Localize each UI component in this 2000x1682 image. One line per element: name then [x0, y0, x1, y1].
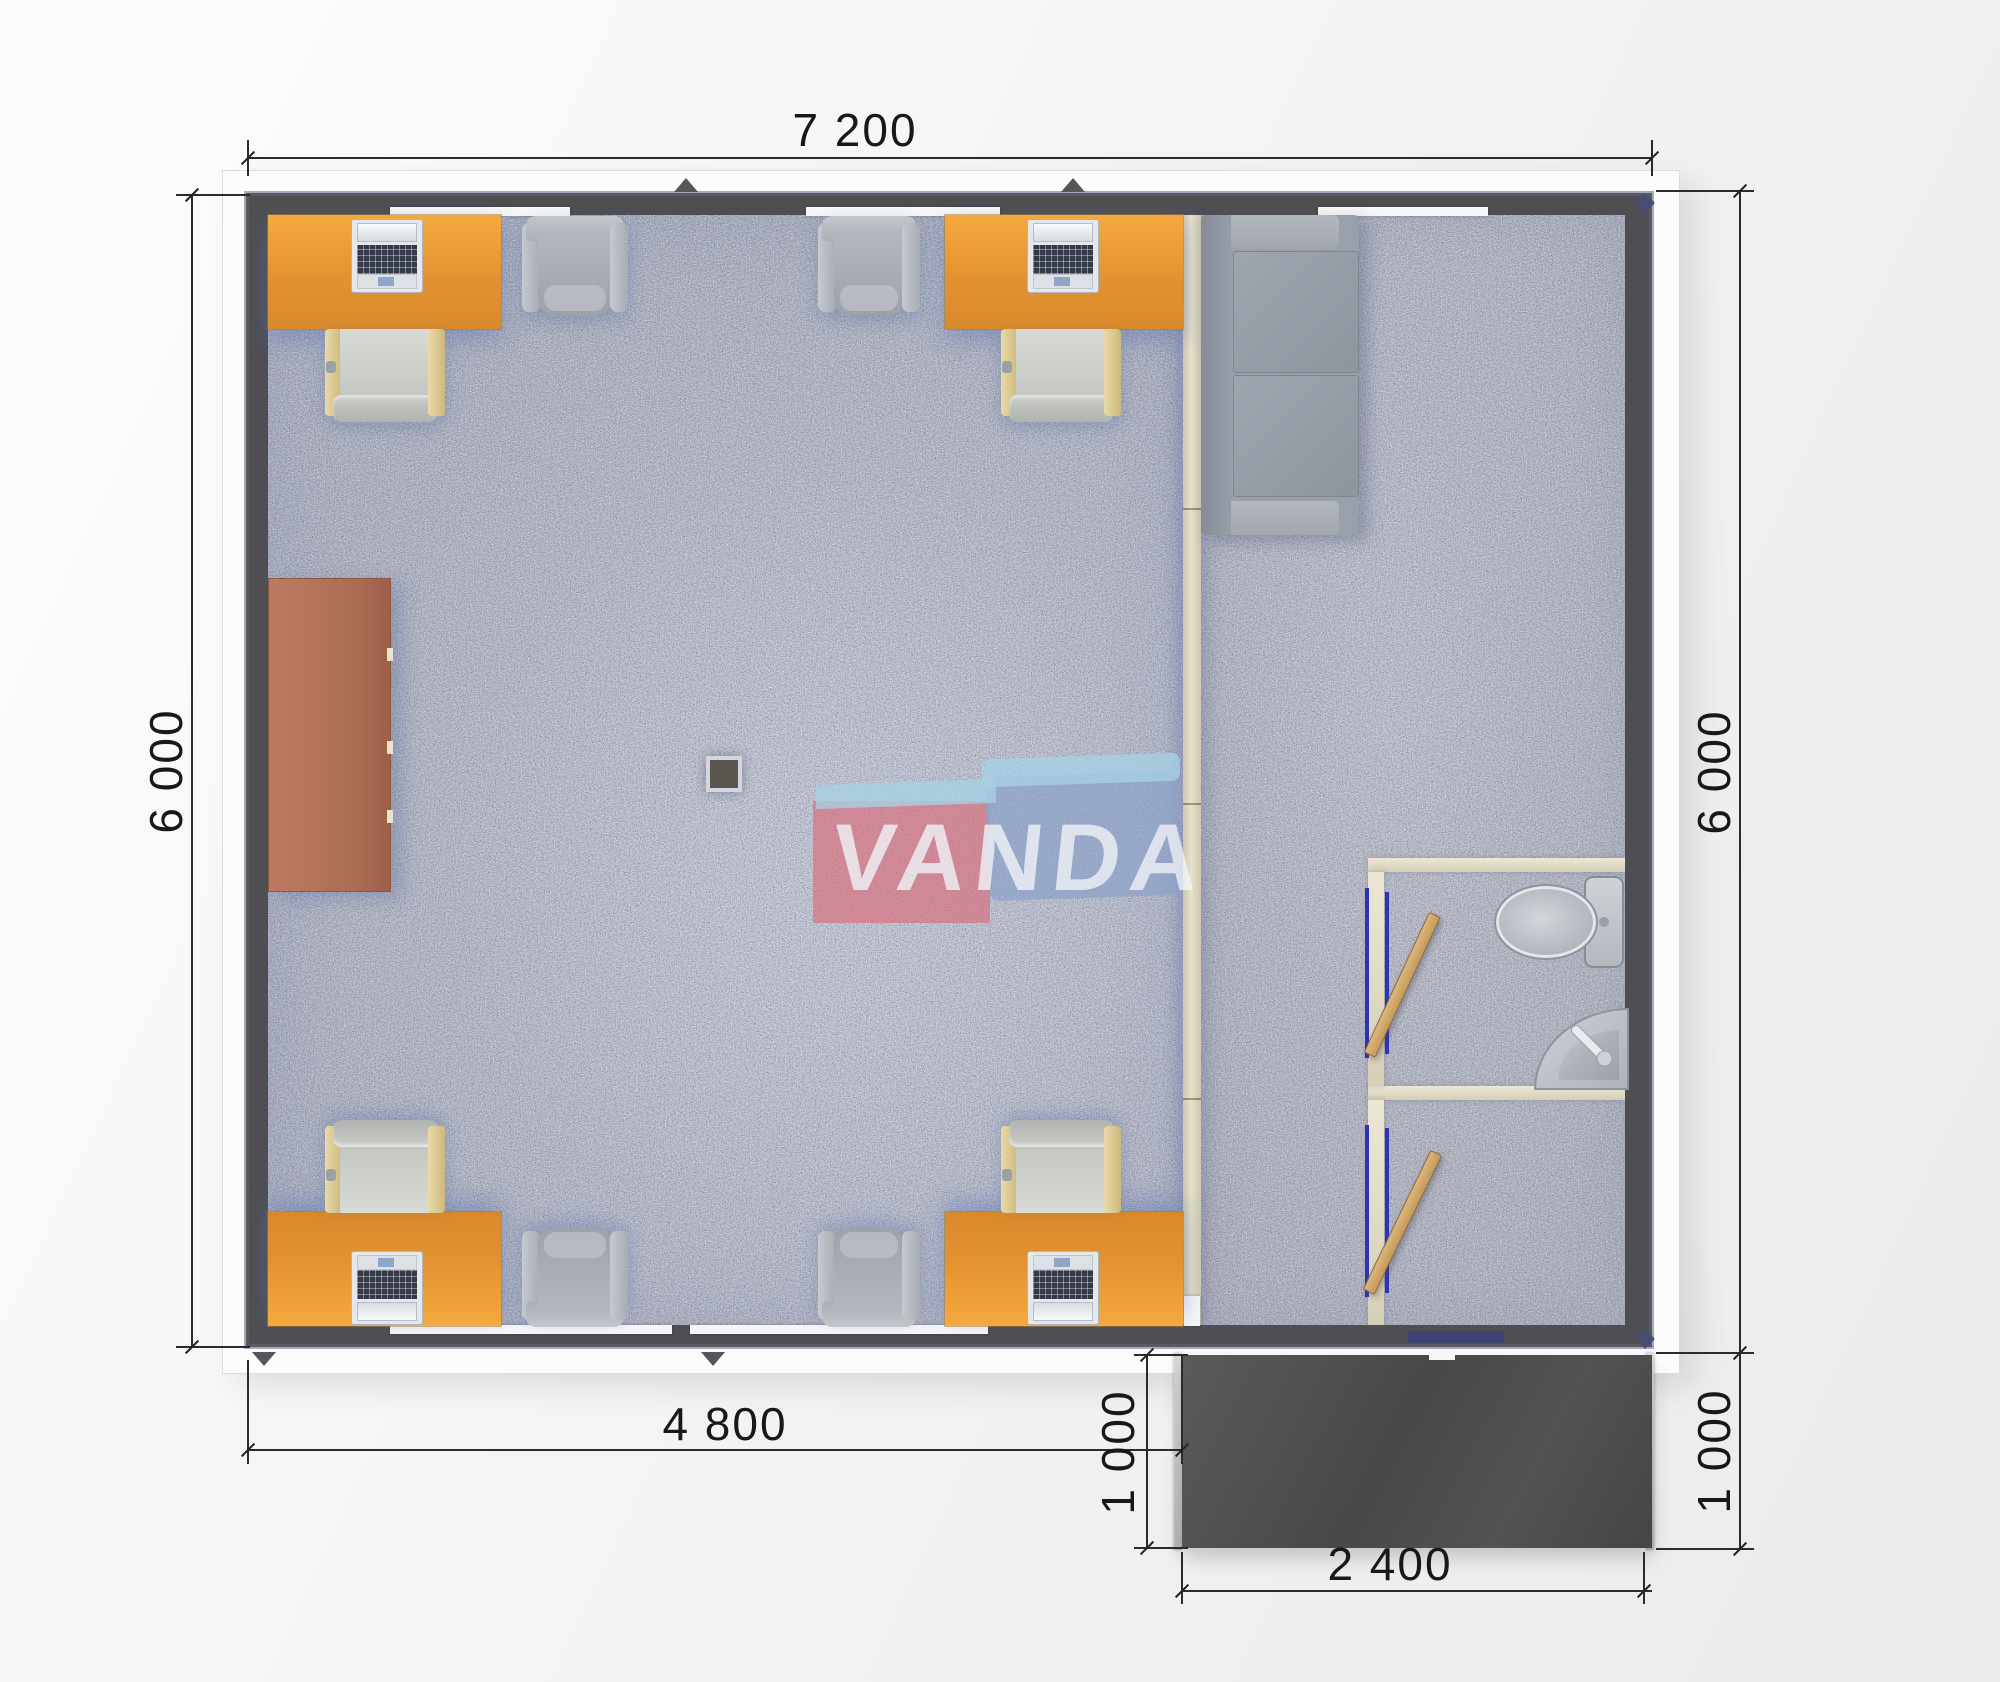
hall-door-frame: [1365, 1125, 1369, 1297]
dim-ext-left-bottom: [176, 1346, 250, 1348]
desk-computer-bottom-left: [351, 1251, 423, 1325]
dim-label-left-height: 6 000: [140, 621, 192, 921]
facade-joint-mark-top-2: [1061, 178, 1085, 192]
computer-front-panel: [357, 1255, 417, 1270]
entrance-porch: [1182, 1355, 1652, 1548]
watermark-text: VANDA: [826, 804, 1213, 913]
sofa-backrest: [1201, 215, 1231, 535]
computer-keyboard: [1033, 245, 1093, 274]
computer-keyboard: [357, 245, 417, 274]
dim-line-porch-width: [1182, 1590, 1652, 1592]
toilet-bowl: [1496, 886, 1596, 958]
facade-joint-mark-top-1: [674, 178, 698, 192]
desk-computer-bottom-right: [1027, 1251, 1099, 1325]
armchair-bottom-left: [522, 1228, 628, 1327]
task-chair-seat: [340, 1142, 430, 1213]
task-chair-bottom-right: [1001, 1120, 1121, 1213]
computer-front-panel: [1033, 1255, 1093, 1270]
facade-joint-mark-bottom-2: [701, 1352, 725, 1366]
computer-screen: [357, 223, 417, 242]
task-chair-back: [333, 395, 437, 422]
armchair-seat: [834, 237, 904, 315]
desk-computer-top-right: [1027, 219, 1099, 293]
task-chair-bottom-left: [325, 1120, 445, 1213]
armchair-top-right: [818, 216, 920, 315]
sideboard-handle: [387, 810, 393, 823]
dim-label-porch-width: 2 400: [1240, 1538, 1540, 1590]
computer-keyboard: [357, 1270, 417, 1299]
sofa-cushion-2: [1233, 375, 1359, 497]
task-chair-top-right: [1001, 329, 1121, 422]
armchair-top-left: [522, 216, 628, 315]
facade-joint-mark-bottom-1: [252, 1352, 276, 1366]
task-chair-back: [1009, 1120, 1113, 1147]
computer-keyboard: [1033, 1270, 1093, 1299]
computer-screen: [1033, 223, 1093, 242]
armchair-seat: [538, 237, 612, 315]
computer-front-panel: [357, 274, 417, 289]
sideboard: [268, 578, 391, 892]
armchair-seat: [834, 1228, 904, 1306]
task-chair-back: [333, 1120, 437, 1147]
armchair-seat: [538, 1228, 612, 1306]
dim-label-porch-depth-right: 1 000: [1688, 1301, 1740, 1601]
partition-wall: [1183, 215, 1201, 1325]
structural-column: [706, 756, 742, 792]
task-chair-seat: [1016, 329, 1106, 400]
watermark-logo: VANDA: [810, 752, 1185, 942]
dim-ext-2400-left: [1181, 1552, 1183, 1604]
floor-plan-canvas: VANDA 7 200 6 000 6 000 4 800 1 000 2 40…: [0, 0, 2000, 1682]
armchair-bottom-right: [818, 1228, 920, 1327]
computer-screen: [1033, 1302, 1093, 1321]
sofa-cushion-1: [1233, 251, 1359, 373]
task-chair-seat: [340, 329, 430, 400]
partition-bottom-notch: [1184, 1296, 1200, 1326]
task-chair-seat: [1016, 1142, 1106, 1213]
task-chair-top-left: [325, 329, 445, 422]
task-chair-back: [1009, 395, 1113, 422]
desk-computer-top-left: [351, 219, 423, 293]
dim-ext-2400-right: [1643, 1552, 1645, 1604]
dim-label-office-width: 4 800: [575, 1398, 875, 1450]
dim-label-porch-depth-left: 1 000: [1092, 1302, 1144, 1602]
bathroom-door-frame: [1365, 888, 1369, 1058]
computer-screen: [357, 1302, 417, 1321]
sofa: [1201, 215, 1359, 535]
dim-line-porch-left: [1146, 1355, 1148, 1548]
bathroom-wall-top: [1368, 858, 1625, 872]
dim-ext-left-top: [176, 194, 250, 196]
entrance-door-threshold: [1429, 1350, 1455, 1360]
dim-label-right-height: 6 000: [1688, 622, 1740, 922]
dim-label-top-width: 7 200: [705, 104, 1005, 156]
dim-line-top: [248, 157, 1652, 159]
computer-front-panel: [1033, 274, 1093, 289]
entrance-door-strip: [1408, 1331, 1504, 1343]
